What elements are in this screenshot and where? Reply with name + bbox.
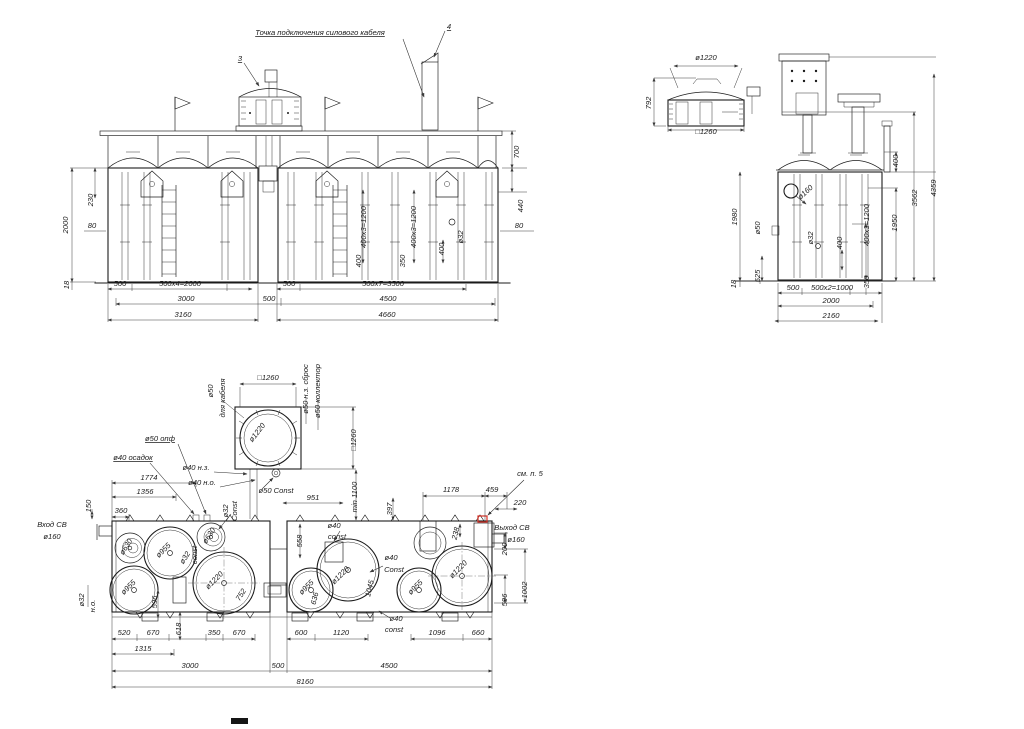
flag-markers — [175, 97, 493, 131]
dim-label: 636 — [309, 590, 321, 605]
dim-label: 500 — [114, 279, 127, 288]
dim-label: ø40 — [384, 553, 398, 562]
dim-label: Const — [384, 565, 405, 574]
dim-label: const — [328, 532, 347, 541]
dim-label: ø1220 — [447, 558, 469, 580]
dim-label: 525 — [753, 269, 762, 282]
dim-label: 1002 — [520, 581, 529, 599]
plan-inner-walls — [116, 521, 488, 612]
cable-point-leader — [403, 39, 424, 97]
dim-label: Вход СВ — [37, 520, 67, 529]
dim-label: 951 — [307, 493, 320, 502]
dim-label: ø1220 — [695, 53, 717, 62]
dim-label: 4 — [447, 22, 451, 31]
dim-label: 360 — [115, 506, 128, 515]
dim-label: ø630 — [117, 536, 134, 556]
lifting-lugs — [141, 171, 458, 197]
dim-label: 670 — [147, 628, 160, 637]
dim-label: 660 — [472, 628, 485, 637]
vent-pipe — [421, 53, 438, 130]
dim-label: 618 — [174, 622, 183, 635]
side-domes — [778, 161, 882, 171]
dim-label: ø50 — [206, 384, 215, 398]
technical-drawing-page: Точка подключения силового кабеля3420002… — [0, 0, 1024, 724]
dim-label: 4660 — [379, 310, 397, 319]
dim-label: 400 — [891, 154, 900, 167]
fitting-osadok — [193, 515, 199, 521]
flange-ticks — [236, 410, 300, 466]
dim-label: 220 — [513, 498, 527, 507]
dim-label: 350 — [208, 628, 221, 637]
tank2-stiffeners — [288, 172, 492, 280]
front-dimensions — [70, 131, 534, 322]
dim-label: ø50 — [753, 221, 762, 235]
dim-label: Выход СВ — [494, 523, 529, 532]
dim-label: 400x3=1200 — [409, 205, 418, 248]
dim-label: 500 — [283, 279, 296, 288]
dim-label: ø160 — [507, 535, 525, 544]
float-switch — [747, 87, 760, 114]
dim-label: 150 — [84, 499, 93, 512]
dim-label: ø40 н.з. — [182, 463, 209, 472]
dim-label: ø160 — [796, 182, 815, 201]
dim-label: 3160 — [175, 310, 193, 319]
dim-label: □1260 — [695, 127, 717, 136]
fitting-opf — [204, 515, 210, 521]
dim-label: ø955 — [406, 577, 425, 596]
dim-label: Точка подключения силового кабеля — [255, 28, 385, 37]
tank1-body — [108, 168, 258, 282]
dim-label: 2000 — [61, 216, 70, 235]
dim-label: 500x4=2000 — [159, 279, 202, 288]
hatch-square — [235, 407, 301, 469]
dim-label: 600 — [295, 628, 308, 637]
dim-label: 459 — [486, 485, 499, 494]
dome-covers — [108, 158, 498, 168]
dim-label: 1980 — [730, 208, 739, 226]
dim-label: 500 — [272, 661, 285, 670]
dim-label: 400x3=1200 — [862, 203, 871, 246]
module-body — [668, 100, 744, 126]
dim-label: 200 — [500, 542, 509, 556]
dim-label: ø1220 — [203, 569, 225, 591]
service-platform — [100, 131, 502, 136]
dim-label: 1120 — [333, 628, 350, 637]
dim-label: 400 — [437, 242, 446, 255]
dim-label: ø32 — [77, 593, 86, 607]
dim-label: ø955 — [119, 577, 138, 596]
dim-label: const — [190, 545, 199, 564]
drawing-canvas: Точка подключения силового кабеля3420002… — [0, 0, 1024, 724]
dim-label: для кабеля — [218, 378, 227, 417]
dim-label: ø40 — [389, 614, 403, 623]
port-32 — [449, 219, 455, 225]
dim-label: 500x2=1000 — [811, 283, 854, 292]
dim-label: 500 — [787, 283, 800, 292]
dim-label: 1315 — [135, 644, 153, 653]
dim-label: ø50 коллектор — [313, 364, 322, 418]
dim-label: ø32 — [806, 231, 815, 245]
dim-label: 18 — [62, 280, 71, 289]
dim-label: 350 — [398, 254, 407, 267]
item3-leader — [244, 63, 259, 86]
drain-fitting — [272, 469, 280, 477]
top-edge-fittings — [126, 515, 484, 521]
dim-label: ø50 н.з. сброс — [301, 364, 310, 414]
dim-label: 440 — [516, 199, 525, 212]
dim-label: 8160 — [297, 677, 315, 686]
side-pedestal — [838, 94, 880, 153]
plan-view-labels: ø50 опфø40 осадок17741356150360Вход СВø1… — [37, 434, 543, 686]
side-view-labels: 435935624001950400x3=1200400ø32ø50ø16019… — [729, 154, 938, 320]
dim-label: 3000 — [178, 294, 196, 303]
dim-label: 2160 — [822, 311, 841, 320]
dim-label: ø1220 — [247, 421, 268, 444]
dim-label: 400 — [835, 236, 844, 249]
side-cabinet — [779, 54, 829, 153]
dim-label: 3 — [238, 54, 243, 63]
dim-label: ø160 — [43, 532, 61, 541]
dim-label: 1178 — [443, 485, 460, 494]
front-elevation-view — [70, 31, 534, 322]
inlet-stub — [97, 524, 112, 540]
inter-tank-connection — [259, 136, 277, 192]
module-top-view — [654, 66, 760, 132]
dim-label: 3562 — [910, 189, 919, 207]
dim-label: 4500 — [380, 294, 398, 303]
dim-label: 1774 — [141, 473, 158, 482]
dim-label: 1045 — [363, 578, 376, 597]
module-top-labels: ø1220792□1260 — [644, 53, 718, 136]
dim-label: □1260 — [257, 373, 279, 382]
dim-label: 500 — [263, 294, 276, 303]
tank1-circles — [110, 523, 260, 619]
dim-label: 80 — [88, 221, 97, 230]
port-32-side — [816, 244, 821, 249]
dim-label: const — [385, 625, 404, 634]
dim-label: ø40 н.о. — [188, 478, 216, 487]
dim-label: 520 — [118, 628, 131, 637]
dim-label: ø32 — [456, 230, 465, 244]
ladders — [162, 185, 347, 277]
module-dome — [668, 92, 744, 100]
front-view-labels: Точка подключения силового кабеля3420002… — [61, 22, 525, 319]
dim-label: 1950 — [890, 214, 899, 232]
dim-label: Const — [230, 500, 239, 521]
dim-label: ø955 — [154, 540, 173, 559]
hatch-detail-labels: □1260ø50для кабеляø1220ø50 н.з. сбросø50… — [182, 364, 394, 515]
dim-label: 1096 — [429, 628, 447, 637]
dim-label: 500x7=3500 — [362, 279, 405, 288]
dim-label: 700 — [512, 145, 521, 158]
dim-label: ø40 осадок — [113, 453, 153, 462]
dim-label: min 1100 — [350, 481, 359, 512]
dim-label: 4500 — [381, 661, 399, 670]
dim-label: 400 — [354, 254, 363, 267]
dim-label: ø32 — [221, 504, 230, 518]
control-cabinet — [236, 70, 302, 131]
dim-label: см. п. 5 — [517, 469, 544, 478]
dim-label: 596 — [150, 595, 159, 608]
dim-label: □1260 — [349, 428, 358, 450]
dim-label: 792 — [644, 96, 653, 109]
dim-label: 596 — [500, 593, 509, 606]
dim-label: 2000 — [822, 296, 841, 305]
item4-leader — [434, 31, 445, 57]
dim-label: ø40 — [327, 521, 341, 530]
dim-label: 18 — [729, 279, 738, 288]
dim-label: 400x3=1200 — [359, 205, 368, 248]
dim-label: 80 — [515, 221, 524, 230]
hatch-pipes-down — [250, 469, 257, 519]
dim-label: 350 — [862, 275, 871, 288]
dim-label: 558 — [295, 534, 304, 547]
dim-label: 3000 — [182, 661, 200, 670]
dim-label: 670 — [233, 628, 246, 637]
dim-label: 397 — [385, 502, 394, 515]
dim-label: 4359 — [929, 179, 938, 197]
dim-label: н.о. — [88, 600, 97, 613]
dim-label: ø50 Const — [258, 486, 294, 495]
plan-neck — [270, 549, 287, 585]
dim-label: ø50 опф — [145, 434, 176, 443]
dim-label: 230 — [86, 193, 95, 207]
dim-label: 1356 — [137, 487, 155, 496]
scan-artifact — [231, 718, 248, 724]
tank2-body — [278, 168, 498, 282]
